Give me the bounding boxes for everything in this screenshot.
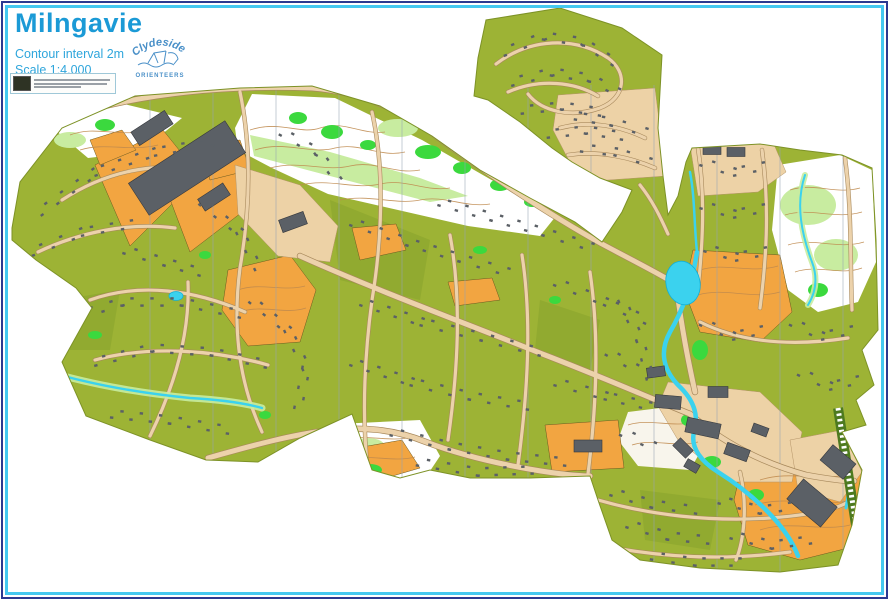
svg-text:Clydeside: Clydeside [130,36,188,58]
copyright-notice [10,73,116,94]
contour-interval-note: Contour interval 2m [15,47,124,61]
orienteering-map [0,0,889,600]
club-logo: Clydeside ORIENTEERS [118,27,202,89]
club-logo-subname: ORIENTEERS [135,73,184,79]
map-terrain [12,8,878,578]
os-thumbnail [13,76,31,91]
club-logo-name: Clydeside [130,36,188,58]
copyright-text-lines [34,78,113,90]
